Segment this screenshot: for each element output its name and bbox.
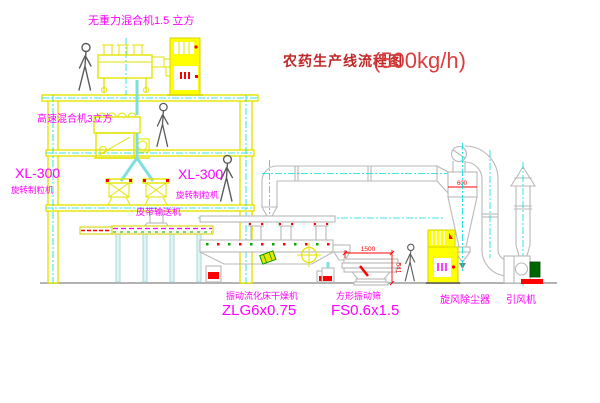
barrel-symbol: [260, 251, 276, 264]
hot-air-duct: [262, 160, 452, 216]
control-cabinet-top: [167, 38, 203, 95]
label-dryer-model: ZLG6x0.75: [222, 302, 296, 319]
label-fan: 引风机: [506, 293, 536, 306]
label-sieve-model: FS0.6x1.5: [331, 302, 399, 319]
suction-pipe: [465, 146, 508, 276]
person-figure: [79, 44, 91, 91]
dryer-ports: [249, 222, 328, 240]
label-sieve-name: 方形振动筛: [336, 290, 381, 301]
sieve-height-dim: 541: [395, 263, 402, 274]
rotary-granulator-left: [106, 179, 132, 205]
diagram-capacity: (500kg/h): [373, 48, 466, 73]
indicator-dot: [194, 45, 197, 48]
person-figure: [157, 103, 168, 146]
indicator-dot: [452, 265, 455, 268]
fan-motor: [530, 262, 540, 277]
label-granulator-right-model: XL-300: [178, 166, 223, 182]
label-granulator-left-name: 旋转制粒机: [11, 185, 54, 195]
label-high-speed-mixer: 高速混合机3立方: [37, 112, 113, 125]
rotary-granulator-right: [143, 179, 169, 205]
control-cabinet-right: [426, 230, 460, 283]
label-granulator-left-model: XL-300: [15, 165, 60, 181]
label-granulator-right-name: 旋转制粒机: [176, 190, 219, 200]
sieve-length-dim: 1500: [361, 246, 376, 253]
fan-base: [521, 279, 543, 284]
label-dryer-name: 振动流化床干燥机: [226, 290, 298, 301]
label-belt-conveyor: 皮带输送机: [136, 206, 181, 217]
induced-draft-fan: [504, 256, 543, 284]
process-flow-diagram: 1500 541 600: [0, 0, 600, 403]
label-gravity-mixer: 无重力混合机1.5 立方: [88, 13, 194, 27]
cad-drawing-page: 1500 541 600: [0, 0, 600, 403]
belt-conveyor: [80, 226, 213, 282]
label-cyclone: 旋风除尘器: [440, 293, 490, 306]
person-figure: [405, 244, 414, 281]
